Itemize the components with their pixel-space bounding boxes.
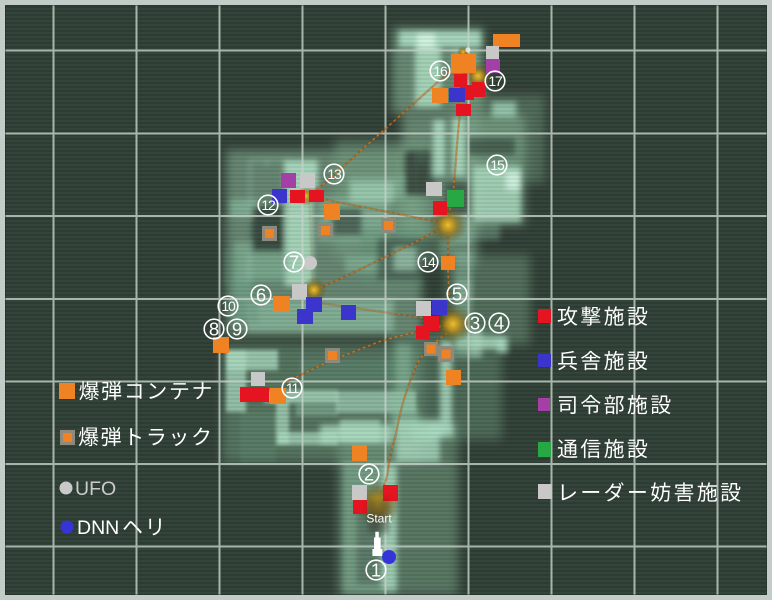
svg-text:9: 9 (232, 319, 242, 340)
svg-text:10: 10 (221, 298, 236, 314)
svg-text:16: 16 (433, 63, 448, 79)
svg-text:15: 15 (490, 157, 505, 173)
svg-text:11: 11 (286, 380, 300, 396)
svg-text:4: 4 (494, 313, 504, 334)
svg-text:6: 6 (256, 285, 266, 306)
svg-text:DNN: DNN (77, 517, 119, 539)
svg-text:3: 3 (470, 313, 480, 334)
svg-text:UFO: UFO (75, 478, 116, 500)
svg-text:5: 5 (452, 284, 462, 305)
svg-text:2: 2 (364, 464, 374, 485)
svg-text:Start: Start (366, 512, 392, 526)
svg-text:13: 13 (327, 166, 342, 182)
svg-text:8: 8 (209, 319, 219, 340)
svg-text:12: 12 (261, 197, 276, 213)
svg-text:1: 1 (371, 560, 381, 581)
svg-text:7: 7 (289, 252, 299, 273)
svg-text:14: 14 (421, 254, 436, 270)
svg-text:17: 17 (488, 73, 503, 89)
